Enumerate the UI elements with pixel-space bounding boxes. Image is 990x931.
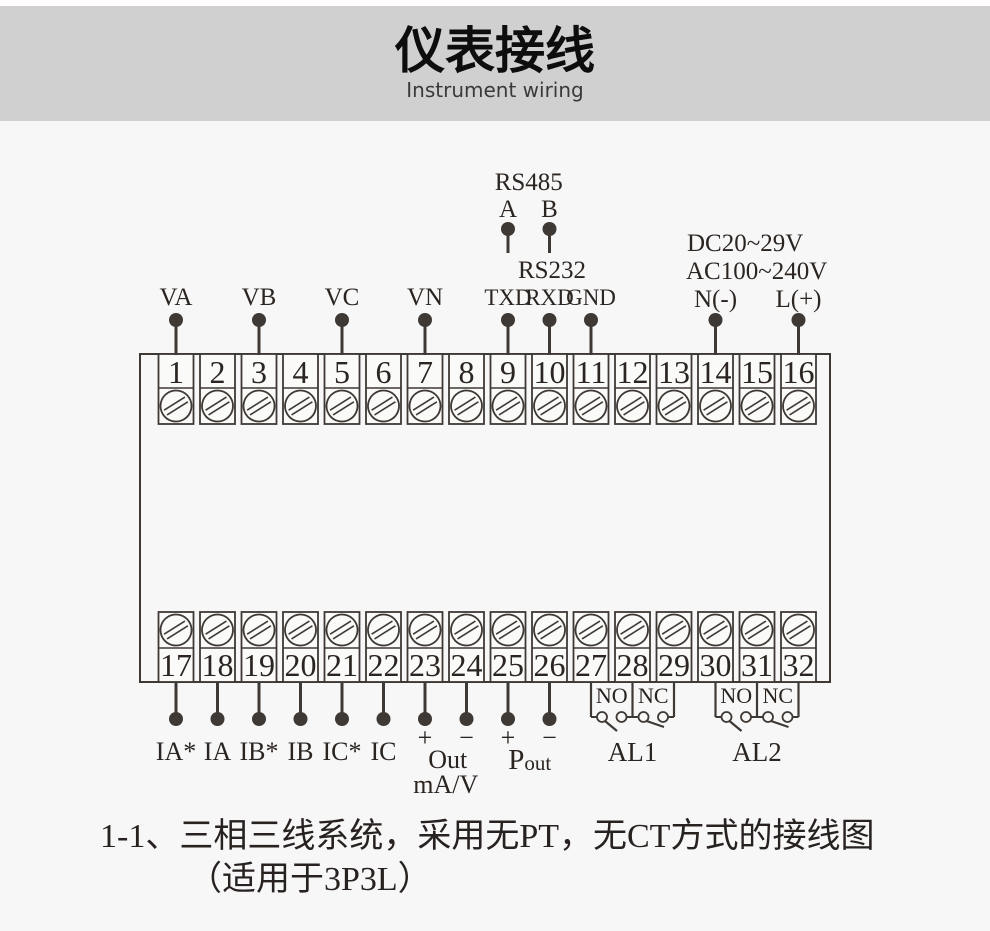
terminal-cell: 5 [321,354,364,427]
terminal-cell: 28 [611,609,654,683]
terminal-number: 24 [451,647,483,683]
contact-point-icon [658,712,668,722]
terminal-number: 32 [783,647,815,683]
caption-line-2: （适用于3P3L） [188,859,960,902]
contact-point-icon [783,712,793,722]
rs485-pin-label: B [541,196,558,223]
wire-dot [294,712,308,726]
terminal-cell: 9 [487,354,530,427]
terminal-cell: 21 [321,609,364,683]
terminal-number: 19 [243,647,275,683]
terminal-cell: 23 [404,609,447,683]
terminal-number: 2 [210,354,226,390]
terminal-cell: 7 [404,354,447,427]
bottom-terminal-label: IA* [156,737,196,766]
terminal-cell: 20 [279,609,322,683]
wire-dot [169,712,183,726]
bottom-terminal-label: IB [288,737,314,766]
terminal-cell: 27 [570,609,613,683]
rs485-pin-label: A [499,196,517,223]
terminal-cell: 18 [196,609,239,683]
analog-output-unit: mA/V [413,770,478,799]
terminal-number: 23 [409,647,441,683]
terminal-cell: 8 [445,354,488,427]
terminal-cell: 15 [736,354,779,427]
terminal-cell: 32 [777,609,820,683]
power-live-label: L(+) [775,286,821,313]
terminal-cell: 13 [653,354,696,427]
terminal-cell: 31 [736,609,779,683]
wire-dot [335,712,349,726]
terminal-cell: 1 [155,354,198,427]
terminal-number: 31 [741,647,773,683]
relay-label: AL1 [608,737,658,767]
rs232-pin-label: GND [566,285,616,310]
contact-blade-open [730,721,742,731]
bottom-terminal-label: IC [371,737,397,766]
terminal-number: 14 [700,354,732,390]
terminal-cell: 22 [362,609,405,683]
terminal-cell: 11 [570,354,613,427]
rs232-label: RS232 [518,257,586,284]
contact-type-label: NC [638,683,669,708]
contact-point-icon [617,712,627,722]
polarity-label: − [542,723,557,752]
bottom-terminal-label: IB* [240,737,279,766]
power-rating-dc: DC20~29V [687,230,803,257]
terminal-number: 6 [376,354,392,390]
terminal-number: 18 [202,647,234,683]
terminal-cell: 24 [445,609,488,683]
terminal-cell: 25 [487,609,530,683]
terminal-number: 5 [334,354,350,390]
terminal-cell: 19 [238,609,281,683]
terminal-number: 21 [326,647,358,683]
terminal-number: 20 [285,647,317,683]
wiring-diagram: 1234567891011121314151617181920212223242… [0,0,990,931]
terminal-number: 30 [700,647,732,683]
terminal-cell: 10 [528,354,571,427]
terminal-cell: 2 [196,354,239,427]
contact-blade-open [605,721,617,731]
terminal-number: 3 [251,354,267,390]
terminal-number: 16 [783,354,815,390]
terminal-number: 22 [368,647,400,683]
terminal-cell: 30 [694,609,737,683]
diagram-caption: 1-1、三相三线系统，采用无PT，无CT方式的接线图 （适用于3P3L） [100,816,960,901]
relay-label: AL2 [732,737,782,767]
bottom-terminal-label: IC* [323,737,362,766]
wire-dot [252,712,266,726]
top-terminal-label: VN [407,284,443,311]
contact-type-label: NO [720,683,752,708]
contact-point-icon [741,712,751,722]
terminal-number: 8 [459,354,475,390]
terminal-number: 12 [617,354,649,390]
terminal-cell: 12 [611,354,654,427]
terminal-number: 4 [293,354,309,390]
terminal-number: 15 [741,354,773,390]
terminal-number: 27 [575,647,607,683]
terminal-number: 13 [658,354,690,390]
terminal-number: 17 [160,647,192,683]
terminal-cell: 29 [653,609,696,683]
top-terminal-label: VA [160,284,193,311]
power-rating-ac: AC100~240V [686,258,827,285]
wire-dot [211,712,225,726]
terminal-number: 7 [417,354,433,390]
terminal-number: 26 [534,647,566,683]
contact-type-label: NO [596,683,628,708]
terminal-number: 1 [168,354,184,390]
terminal-cell: 16 [777,354,820,427]
power-neutral-label: N(-) [694,286,737,313]
terminal-cell: 3 [238,354,281,427]
terminal-cell: 6 [362,354,405,427]
terminal-number: 29 [658,647,690,683]
rs485-label: RS485 [495,169,563,196]
terminal-cell: 4 [279,354,322,427]
terminal-cell: 17 [155,609,198,683]
caption-line-1: 1-1、三相三线系统，采用无PT，无CT方式的接线图 [100,816,960,859]
terminal-number: 9 [500,354,516,390]
top-terminal-label: VC [325,284,360,311]
bottom-terminal-label: IA [204,737,232,766]
terminal-number: 25 [492,647,524,683]
wire-dot [377,712,391,726]
terminal-cell: 26 [528,609,571,683]
terminal-number: 10 [534,354,566,390]
top-terminal-label: VB [242,284,277,311]
terminal-number: 28 [617,647,649,683]
terminal-cell: 14 [694,354,737,427]
contact-type-label: NC [762,683,793,708]
terminal-number: 11 [576,354,607,390]
